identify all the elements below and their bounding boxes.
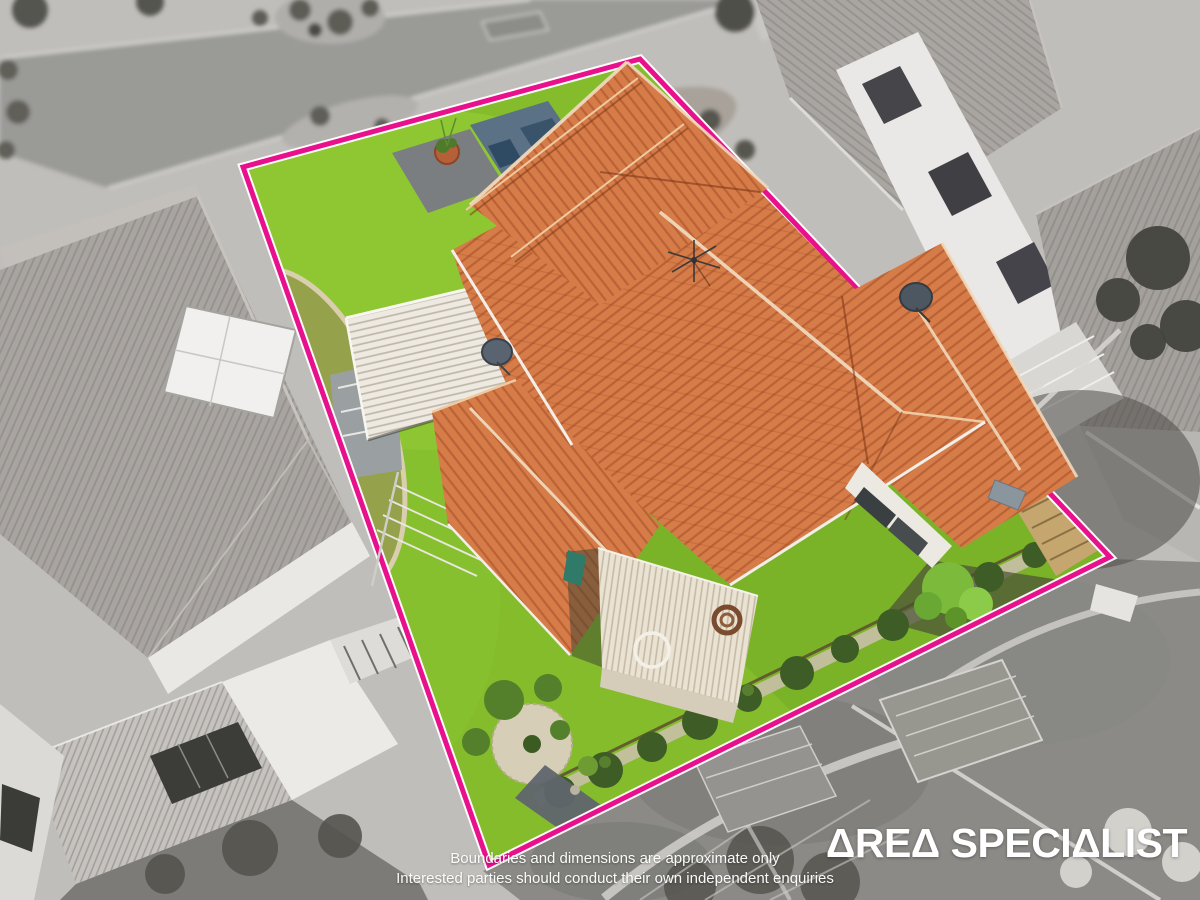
brand-logo: ΔREΔ SPECIΔLIST [826, 820, 1187, 867]
disclaimer: Boundaries and dimensions are approximat… [396, 849, 834, 889]
aerial-scene [0, 0, 1200, 900]
aerial-photo: Boundaries and dimensions are approximat… [0, 0, 1200, 900]
disclaimer-line-1: Boundaries and dimensions are approximat… [396, 849, 834, 869]
disclaimer-line-2: Interested parties should conduct their … [396, 869, 834, 889]
